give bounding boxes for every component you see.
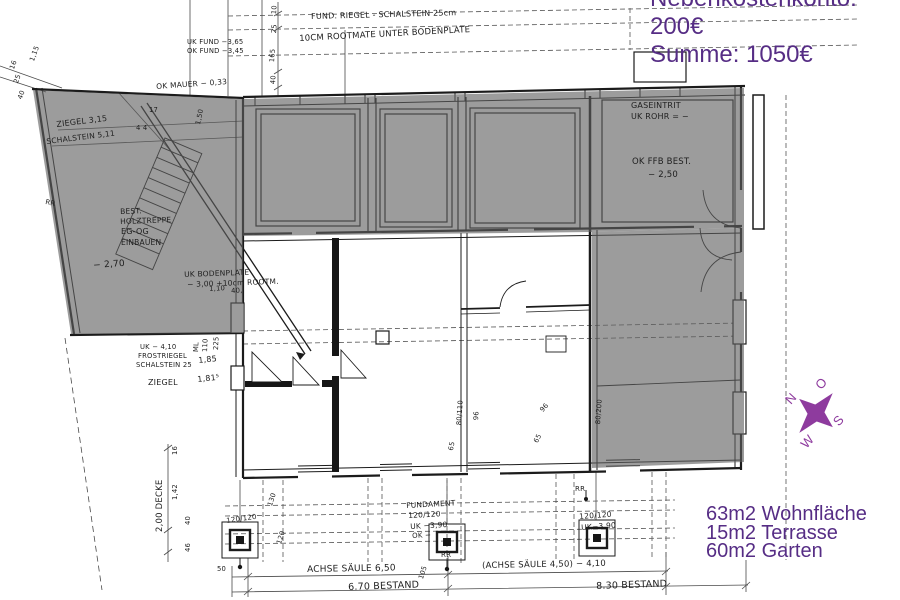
note-rr-mid: RR: [441, 552, 451, 559]
dim-bestand-830: 8.30 BESTAND: [596, 580, 667, 592]
dim-17: 17: [149, 107, 158, 114]
note-uk-410: UK − 4,10: [140, 344, 176, 351]
dim-decke-200: 2,00 DECKE: [156, 480, 165, 532]
dim-110: 1,10: [209, 285, 225, 293]
dim-ml: ML: [193, 342, 200, 352]
area-summary-note: 63m2 Wohnfläche 15m2 Terrasse 60m2 Garte…: [706, 505, 867, 561]
note-fundament-size: 120/120: [408, 510, 441, 519]
dim-bestand-670: 6.70 BESTAND: [348, 581, 419, 593]
summe-line: Summe: 1050€: [650, 41, 900, 69]
dim-16b: 16: [172, 446, 179, 455]
dim-achse-450: (ACHSE SÄULE 4,50) − 4,10: [482, 560, 606, 571]
cost-summary-note: Nebenkostenkonto: 200€ Summe: 1050€: [650, 0, 900, 69]
compass-star: [782, 379, 849, 447]
note-ziegel: ZIEGEL: [148, 379, 178, 387]
dim-40d: 40: [185, 516, 192, 525]
note-einbauen: EINBAUEN: [121, 239, 161, 247]
note-uk-rohr: UK ROHR = −: [631, 113, 689, 121]
note-frostriegel: FROSTRIEGEL: [138, 353, 187, 360]
note-fundament-uk: UK −3,90: [410, 521, 448, 530]
dim-40: 40: [270, 75, 277, 85]
note-gaseintrit: GASEINTRIT: [631, 102, 681, 110]
dim-25: 25: [271, 24, 278, 34]
dim-80-110: 80/110: [456, 400, 465, 426]
note-ok-fund: OK FUND −3,45: [187, 48, 244, 55]
note-holztreppe: HOLZTREPPE: [120, 216, 171, 225]
dim-achse-650: ACHSE SÄULE 6,50: [307, 564, 396, 575]
note-rr-right: RR: [575, 486, 585, 493]
dashed-lines: [225, 5, 858, 564]
note-ok-ffb: OK FFB BEST.: [632, 158, 691, 167]
dim-40c: 40,: [231, 287, 243, 294]
nebenkosten-line: Nebenkostenkonto: 200€: [650, 0, 900, 41]
note-uk-fund: UK FUND −3,65: [187, 39, 243, 46]
wohnflaeche-line: 63m2 Wohnfläche: [706, 505, 867, 524]
dim-165: 165: [269, 48, 277, 62]
note-minus-250: − 2,50: [648, 171, 678, 180]
note-fundament-ok: OK −: [412, 532, 431, 540]
note-eg-og: EG-OG: [121, 228, 149, 236]
dim-142: 1,42: [172, 484, 179, 500]
note-footright-size: 120/120: [579, 511, 612, 521]
dim-46: 46: [185, 543, 192, 552]
garten-line: 60m2 Garten: [706, 542, 867, 561]
dim-110b: 110: [202, 338, 209, 352]
note-best: BEST.: [120, 207, 142, 215]
dim-50: 50: [217, 566, 226, 573]
note-schalstein-25: SCHALSTEIN 25: [136, 362, 192, 369]
highlight-overlay: [33, 88, 744, 468]
dim-96: 96: [473, 411, 480, 421]
dim-80-200: 80/200: [595, 399, 604, 425]
dim-65: 65: [448, 441, 456, 451]
dim-10: 10: [271, 5, 278, 15]
dim-225: 225: [213, 336, 220, 350]
floorplan-page: FUND. RIEGEL - SCHALSTEIN 25cm 10CM ROOT…: [0, 0, 900, 600]
dim-44: 4 4: [136, 125, 147, 132]
note-uk-bodenplate: UK BODENPLATE: [184, 269, 249, 279]
